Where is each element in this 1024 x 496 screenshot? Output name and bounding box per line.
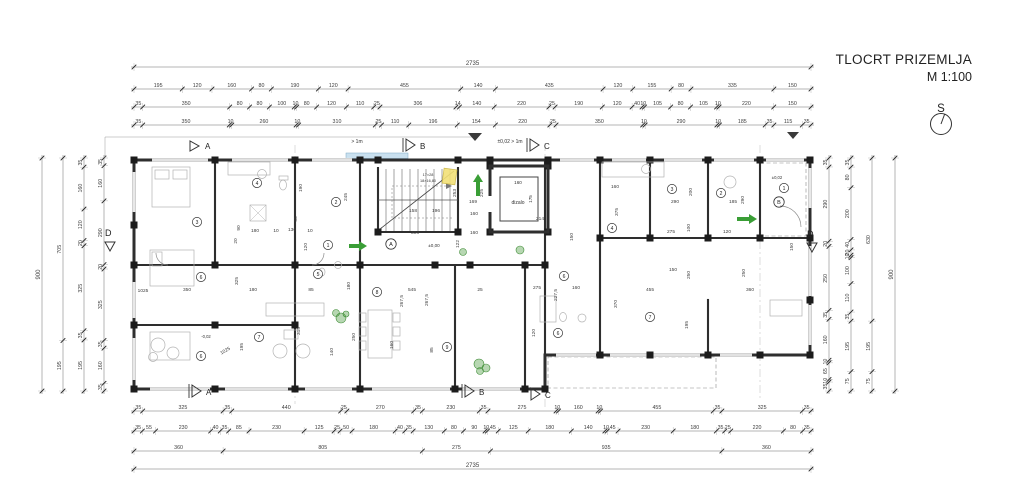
window-gap bbox=[612, 158, 646, 162]
dimension-value: 455 bbox=[400, 83, 409, 89]
dimension-value: 195 bbox=[154, 83, 163, 89]
dimension-value: 160 bbox=[78, 184, 84, 193]
dimension-value: 55 bbox=[146, 425, 152, 431]
interior-dimension: 100 bbox=[686, 224, 692, 232]
dimension-value: 25 bbox=[549, 101, 555, 107]
section-marker-triangle bbox=[190, 141, 199, 151]
column bbox=[292, 386, 299, 393]
column bbox=[131, 262, 138, 269]
section-marker-label: D bbox=[807, 229, 814, 239]
window-gap bbox=[372, 387, 450, 391]
interior-dimension: 120 bbox=[303, 243, 309, 251]
dimension-value: 435 bbox=[545, 83, 554, 89]
dimension-value: 900 bbox=[36, 269, 42, 280]
dimension-value: 230 bbox=[641, 425, 650, 431]
dimension-value: 80 bbox=[678, 101, 684, 107]
dimension-value: 195 bbox=[845, 342, 851, 351]
dimension-value: 130 bbox=[424, 425, 433, 431]
dimension-value: 180 bbox=[369, 425, 378, 431]
dimension-value: 35 bbox=[804, 425, 810, 431]
dimension-value: 35 bbox=[767, 119, 773, 125]
furniture bbox=[155, 170, 169, 179]
column bbox=[647, 352, 654, 359]
dimension-value: 275 bbox=[452, 445, 461, 451]
dimension-value: 35 bbox=[823, 384, 829, 390]
interior-dimension: 180 bbox=[346, 282, 352, 290]
interior-dimension: 55 bbox=[293, 216, 299, 222]
plant bbox=[343, 311, 349, 317]
dimension-value: 25 bbox=[334, 425, 340, 431]
dimension-value: 150 bbox=[788, 83, 797, 89]
column bbox=[212, 322, 219, 329]
dimension-value: 120 bbox=[613, 101, 622, 107]
interior-dimension: 375 bbox=[614, 208, 620, 216]
dimension-value: 25 bbox=[725, 425, 731, 431]
dimension-value: 35 bbox=[845, 314, 851, 320]
room-number: 8 bbox=[376, 290, 379, 296]
dimension-value: 90 bbox=[471, 425, 477, 431]
column bbox=[212, 262, 219, 269]
interior-dimension: 245 bbox=[343, 193, 349, 201]
dimension-value: 35 bbox=[804, 405, 810, 411]
dimension-value: 35 bbox=[415, 405, 421, 411]
column bbox=[522, 262, 529, 269]
room-number: 6 bbox=[200, 354, 203, 360]
elevator-door-gap bbox=[488, 196, 493, 212]
room-number: 6 bbox=[200, 275, 203, 281]
column bbox=[131, 222, 138, 229]
column bbox=[375, 229, 382, 236]
dimension-value: 150 bbox=[788, 101, 797, 107]
dimension-value: 630 bbox=[866, 235, 872, 244]
dimension-value: 110 bbox=[356, 101, 364, 107]
dimension-value: 350 bbox=[595, 119, 604, 125]
window-gap bbox=[720, 353, 752, 357]
room-number: 2 bbox=[720, 191, 723, 197]
furniture bbox=[273, 344, 287, 358]
section-marker-label: A bbox=[206, 388, 212, 397]
direction-arrow bbox=[737, 214, 757, 224]
interior-dimension: 120 bbox=[531, 329, 537, 337]
interior-dimension: 545 bbox=[408, 287, 416, 293]
dimension-value: 100 bbox=[277, 101, 286, 107]
column bbox=[597, 352, 604, 359]
column bbox=[467, 262, 474, 269]
dimension-value: 120 bbox=[78, 220, 84, 229]
dimension-value: 35 bbox=[823, 159, 829, 165]
dimension-value: 35 bbox=[222, 425, 228, 431]
window-gap bbox=[556, 353, 596, 357]
dimension-value: 35 bbox=[78, 160, 84, 166]
dimension-value: 35 bbox=[98, 159, 104, 165]
elevator-shaft bbox=[490, 166, 548, 232]
window-gap bbox=[152, 158, 208, 162]
column bbox=[487, 157, 494, 164]
dimension-value: 120 bbox=[329, 83, 338, 89]
plan-text: ±0,00 bbox=[428, 243, 440, 248]
plant bbox=[460, 249, 467, 256]
north-compass: S bbox=[931, 103, 952, 135]
dimension-value: 35 bbox=[78, 332, 84, 338]
dimension-value: 20 bbox=[823, 241, 829, 247]
dimension-value: 350 bbox=[182, 119, 191, 125]
dimension-value: 900 bbox=[889, 269, 895, 280]
column bbox=[131, 322, 138, 329]
dimension-value: 260 bbox=[260, 119, 269, 125]
plan-text: ±0,02 bbox=[772, 175, 783, 180]
column bbox=[455, 229, 462, 236]
dimension-value: 220 bbox=[742, 101, 751, 107]
dimension-value: 275 bbox=[518, 405, 527, 411]
dimension-value: 325 bbox=[78, 284, 84, 293]
plan-text: 18×16,80 bbox=[420, 179, 436, 183]
dimension-value: 40 bbox=[634, 101, 640, 107]
room-number: 4 bbox=[611, 226, 614, 232]
interior-dimension: 160 bbox=[572, 285, 580, 291]
dimension-value: 335 bbox=[728, 83, 737, 89]
section-marker-label: D bbox=[105, 228, 112, 238]
window-gap bbox=[808, 168, 812, 208]
interior-dimension: 160 bbox=[470, 211, 478, 217]
dimension-value: 250 bbox=[823, 274, 829, 283]
dimension-value: 200 bbox=[845, 209, 851, 218]
column bbox=[357, 262, 364, 269]
dimension-value: 35 bbox=[718, 425, 724, 431]
dimension-value: 154 bbox=[472, 119, 481, 125]
dimension-value: 180 bbox=[545, 425, 554, 431]
dimension-value: 270 bbox=[376, 405, 385, 411]
dimension-value: 80 bbox=[790, 425, 796, 431]
column bbox=[757, 235, 764, 242]
section-marker-label: C bbox=[545, 391, 551, 400]
interior-dimension: 122 bbox=[455, 240, 461, 248]
section-marker-triangle bbox=[406, 139, 415, 151]
furniture bbox=[393, 313, 400, 322]
interior-dimension: 1025 bbox=[219, 346, 232, 357]
column bbox=[545, 157, 552, 164]
dimension-value: 35 bbox=[98, 341, 104, 347]
dimension-value: 440 bbox=[282, 405, 291, 411]
interior-dimension: 315 bbox=[296, 327, 302, 335]
dimension-value: 220 bbox=[517, 101, 526, 107]
dimension-value: 80 bbox=[304, 101, 310, 107]
dimension-value: 50 bbox=[343, 425, 349, 431]
dimension-value: 196 bbox=[429, 119, 438, 125]
window-gap bbox=[132, 172, 136, 212]
dimension-value: 290 bbox=[98, 228, 104, 237]
dimension-value: 35 bbox=[823, 312, 829, 318]
window-gap bbox=[714, 158, 754, 162]
direction-arrow bbox=[349, 241, 367, 251]
column bbox=[212, 386, 219, 393]
title-block: TLOCRT PRIZEMLJA M 1:100 bbox=[760, 52, 972, 84]
dimension-value: 2735 bbox=[466, 463, 480, 469]
drawing-scale: M 1:100 bbox=[760, 70, 972, 84]
compass-needle bbox=[941, 115, 945, 125]
toilet bbox=[560, 313, 567, 322]
column bbox=[432, 262, 439, 269]
furniture bbox=[173, 170, 187, 179]
plan-text: 175 bbox=[528, 195, 533, 203]
furniture bbox=[151, 338, 165, 352]
interior-dimension: 90 bbox=[236, 225, 242, 231]
dimension-value: 35 bbox=[715, 405, 721, 411]
dimension-value: 125 bbox=[509, 425, 518, 431]
furniture bbox=[393, 327, 400, 336]
furniture bbox=[228, 162, 270, 175]
interior-dimension: 160 bbox=[611, 184, 619, 190]
interior-dimension: 290 bbox=[671, 199, 679, 205]
toilet bbox=[280, 180, 287, 190]
interior-dimension: 130 bbox=[288, 227, 296, 233]
column bbox=[357, 386, 364, 393]
interior-dimension: 360 bbox=[746, 287, 754, 293]
column bbox=[757, 352, 764, 359]
entrance-marker bbox=[787, 132, 799, 139]
dimension-value: 230 bbox=[446, 405, 455, 411]
furniture bbox=[152, 252, 162, 266]
furniture bbox=[578, 314, 586, 322]
interior-dimension: 150 bbox=[789, 243, 795, 251]
dimension-value: 180 bbox=[690, 425, 699, 431]
dimension-value: 100 bbox=[845, 266, 851, 275]
window-gap bbox=[610, 353, 700, 357]
interior-dimension: 120 bbox=[723, 229, 731, 235]
furniture bbox=[150, 250, 194, 286]
interior-dimension: 85 bbox=[429, 347, 435, 353]
dimension-value: 35 bbox=[135, 119, 141, 125]
dimension-value: 290 bbox=[823, 200, 829, 209]
dimension-value: 190 bbox=[574, 101, 583, 107]
dimension-value: 455 bbox=[652, 405, 661, 411]
dimension-value: 35 bbox=[481, 405, 487, 411]
dimension-value: 35 bbox=[224, 405, 230, 411]
interior-dimension: 250 bbox=[741, 269, 747, 277]
interior-dimension: 25 bbox=[477, 287, 483, 293]
floor-plan-page: TLOCRT PRIZEMLJA M 1:100 S 2735195120160… bbox=[0, 0, 1024, 496]
dimension-value: 115 bbox=[784, 119, 792, 125]
window-gap bbox=[225, 387, 288, 391]
column bbox=[597, 235, 604, 242]
dimension-value: 195 bbox=[78, 361, 84, 370]
window-gap bbox=[132, 282, 136, 318]
column bbox=[705, 235, 712, 242]
plan-text: dizalo bbox=[511, 200, 524, 206]
column bbox=[375, 157, 382, 164]
dimension-value: 140 bbox=[474, 83, 483, 89]
furniture bbox=[770, 300, 802, 316]
dimension-value: 310 bbox=[333, 119, 342, 125]
dimension-value: 120 bbox=[327, 101, 336, 107]
interior-dimension: 150 bbox=[669, 267, 677, 273]
furniture bbox=[279, 176, 288, 180]
dimension-value: 110 bbox=[391, 119, 399, 125]
column bbox=[292, 157, 299, 164]
dimension-value: 25 bbox=[375, 119, 381, 125]
dimension-value: 75 bbox=[866, 378, 872, 384]
dimension-value: 125 bbox=[315, 425, 324, 431]
interior-dimension: 267,5 bbox=[399, 295, 405, 307]
room-number: 3 bbox=[196, 220, 199, 226]
plan-text: -0,02 bbox=[201, 334, 211, 339]
room-number: 1 bbox=[327, 243, 330, 249]
dimension-value: 35 bbox=[135, 405, 141, 411]
dimension-value: 35 bbox=[135, 101, 141, 107]
interior-dimension: 275 bbox=[667, 229, 675, 235]
dimension-value: 160 bbox=[823, 335, 829, 344]
column bbox=[807, 157, 814, 164]
interior-dimension: 227,5 bbox=[553, 289, 559, 301]
dimension-value: 220 bbox=[753, 425, 762, 431]
column bbox=[452, 386, 459, 393]
dimension-value: 80 bbox=[259, 83, 265, 89]
interior-dimension: 370 bbox=[613, 300, 619, 308]
dimension-value: 35 bbox=[845, 160, 851, 166]
interior-dimension: 195 bbox=[239, 343, 245, 351]
plant bbox=[477, 368, 484, 375]
dimension-value: 230 bbox=[179, 425, 188, 431]
column bbox=[705, 352, 712, 359]
interior-dimension: 10 bbox=[273, 228, 279, 234]
section-marker-triangle bbox=[530, 139, 539, 151]
dimension-value: 20 bbox=[78, 240, 84, 246]
interior-dimension: 196 bbox=[432, 208, 440, 214]
dimension-value: 350 bbox=[182, 101, 191, 107]
dimension-value: 325 bbox=[758, 405, 767, 411]
interior-dimension: 250 bbox=[351, 333, 357, 341]
dimension-value: 140 bbox=[584, 425, 593, 431]
interior-dimension: 225 bbox=[479, 189, 485, 197]
interior-dimension: 85 bbox=[308, 287, 314, 293]
dimension-value: 195 bbox=[866, 342, 872, 351]
furniture bbox=[150, 332, 190, 360]
furniture bbox=[167, 347, 179, 359]
stair-walkline bbox=[392, 186, 452, 218]
window-gap bbox=[132, 338, 136, 380]
interior-dimension: 455 bbox=[646, 287, 654, 293]
column bbox=[542, 262, 549, 269]
dimension-value: 935 bbox=[602, 445, 611, 451]
window-gap bbox=[560, 158, 594, 162]
section-marker-triangle bbox=[105, 242, 115, 251]
interior-dimension: 200 bbox=[688, 188, 694, 196]
furniture bbox=[152, 167, 190, 207]
dimension-value: 160 bbox=[98, 361, 104, 370]
dimension-value: 110 bbox=[845, 294, 851, 302]
dimension-value: 45 bbox=[610, 425, 616, 431]
dimension-value: 220 bbox=[518, 119, 527, 125]
interior-dimension: 140 bbox=[329, 348, 335, 356]
plant bbox=[516, 246, 524, 254]
interior-dimension: 160 bbox=[470, 230, 478, 236]
column bbox=[357, 157, 364, 164]
dimension-value: 35 bbox=[804, 119, 810, 125]
plant bbox=[333, 310, 340, 317]
dimension-value: 140 bbox=[472, 101, 481, 107]
dimension-value: 185 bbox=[738, 119, 747, 125]
dimension-value: 325 bbox=[178, 405, 187, 411]
interior-dimension: 350 bbox=[183, 287, 191, 293]
interior-dimension: 306 bbox=[411, 230, 419, 236]
terrace-outline bbox=[760, 163, 806, 236]
interior-dimension: 180 bbox=[251, 228, 259, 234]
interior-dimension: 195 bbox=[684, 321, 690, 329]
dimension-value: 25 bbox=[374, 101, 380, 107]
terrace-outline bbox=[548, 357, 716, 388]
plan-text: 160 bbox=[514, 180, 522, 185]
section-marker-label: A bbox=[205, 142, 211, 151]
furniture bbox=[602, 162, 664, 177]
interior-dimension: 275 bbox=[533, 285, 541, 291]
column bbox=[705, 157, 712, 164]
room-number: 6 bbox=[563, 274, 566, 280]
grid-bubble-label: A bbox=[389, 242, 393, 248]
column bbox=[522, 386, 529, 393]
dimension-value: 45 bbox=[490, 425, 496, 431]
dimension-value: 360 bbox=[174, 445, 183, 451]
dimension-value: 35 bbox=[135, 425, 141, 431]
interior-dimension: 214 bbox=[536, 216, 544, 222]
window-gap bbox=[808, 246, 812, 296]
dimension-value: 105 bbox=[653, 101, 662, 107]
interior-dimension: 267,5 bbox=[424, 294, 430, 306]
dimension-value: 155 bbox=[648, 83, 657, 89]
dimension-value: 230 bbox=[272, 425, 281, 431]
dimension-value: 85 bbox=[236, 425, 242, 431]
interior-dimension: 185 bbox=[729, 199, 737, 205]
plan-text: 17×28 bbox=[423, 173, 434, 177]
window-gap bbox=[808, 305, 812, 345]
section-marker-label: C bbox=[544, 142, 550, 151]
door-swing bbox=[780, 206, 801, 227]
dimension-value: 805 bbox=[318, 445, 327, 451]
dimension-value: 25 bbox=[341, 405, 347, 411]
dimension-value: 325 bbox=[98, 300, 104, 309]
room-number: 9 bbox=[446, 345, 449, 351]
room-number: 1 bbox=[783, 186, 786, 192]
drawing-title: TLOCRT PRIZEMLJA bbox=[760, 52, 972, 67]
dimension-value: 80 bbox=[257, 101, 263, 107]
dimension-value: 190 bbox=[290, 83, 299, 89]
column bbox=[807, 352, 814, 359]
room-number: 3 bbox=[671, 187, 674, 193]
room-number: 6 bbox=[557, 331, 560, 337]
dimension-value: 80 bbox=[678, 83, 684, 89]
interior-dimension: 1025 bbox=[138, 288, 149, 294]
window-gap bbox=[766, 158, 804, 162]
column bbox=[597, 157, 604, 164]
column bbox=[647, 235, 654, 242]
furniture bbox=[296, 344, 310, 358]
window-gap bbox=[232, 158, 288, 162]
interior-dimension: 250 bbox=[686, 271, 692, 279]
interior-dimension: 253 bbox=[452, 189, 458, 197]
dimension-value: 195 bbox=[57, 361, 63, 370]
window-gap bbox=[664, 158, 702, 162]
furniture bbox=[258, 170, 267, 179]
window-gap bbox=[305, 387, 352, 391]
dimension-value: 120 bbox=[614, 83, 623, 89]
column bbox=[455, 157, 462, 164]
grid-bubble-label: B bbox=[777, 200, 781, 206]
dimension-value: 160 bbox=[574, 405, 583, 411]
plan-text: ±0,02 > 1m bbox=[497, 139, 522, 145]
window-gap bbox=[312, 158, 352, 162]
dimension-value: 25 bbox=[550, 119, 556, 125]
interior-dimension: 180 bbox=[249, 287, 257, 293]
interior-dimension: 150 bbox=[569, 233, 575, 241]
dimension-value: 40 bbox=[845, 242, 851, 248]
